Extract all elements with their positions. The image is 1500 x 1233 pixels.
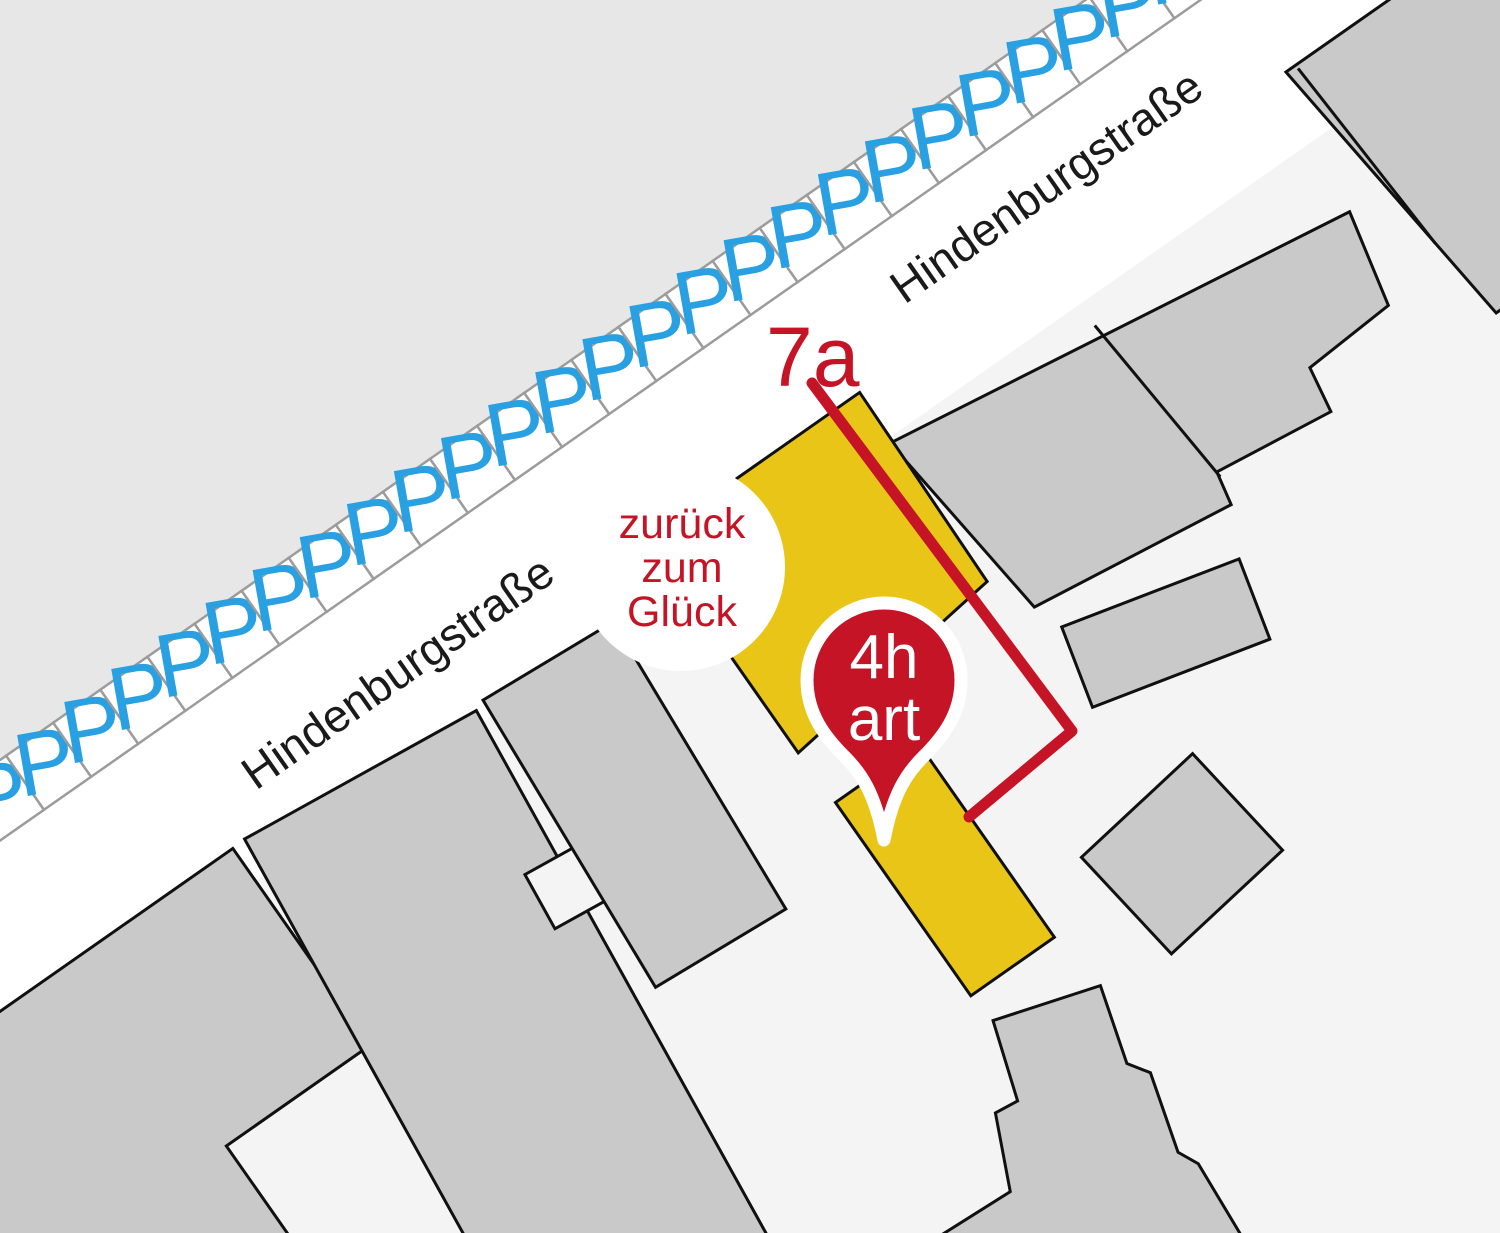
- tagline-line: zum: [641, 544, 722, 592]
- pin-label-line: 4h: [850, 623, 919, 692]
- address-label: 7a: [766, 310, 860, 404]
- tagline-line: zurück: [619, 500, 746, 548]
- pin-label-line: art: [848, 685, 920, 754]
- site-map: PPPPPPPPPPPPPPPPPPPPPPPPPPPPPPPP Hindenb…: [0, 0, 1500, 1233]
- tagline-line: Glück: [627, 588, 737, 636]
- map-canvas: PPPPPPPPPPPPPPPPPPPPPPPPPPPPPPPP Hindenb…: [0, 0, 1500, 1233]
